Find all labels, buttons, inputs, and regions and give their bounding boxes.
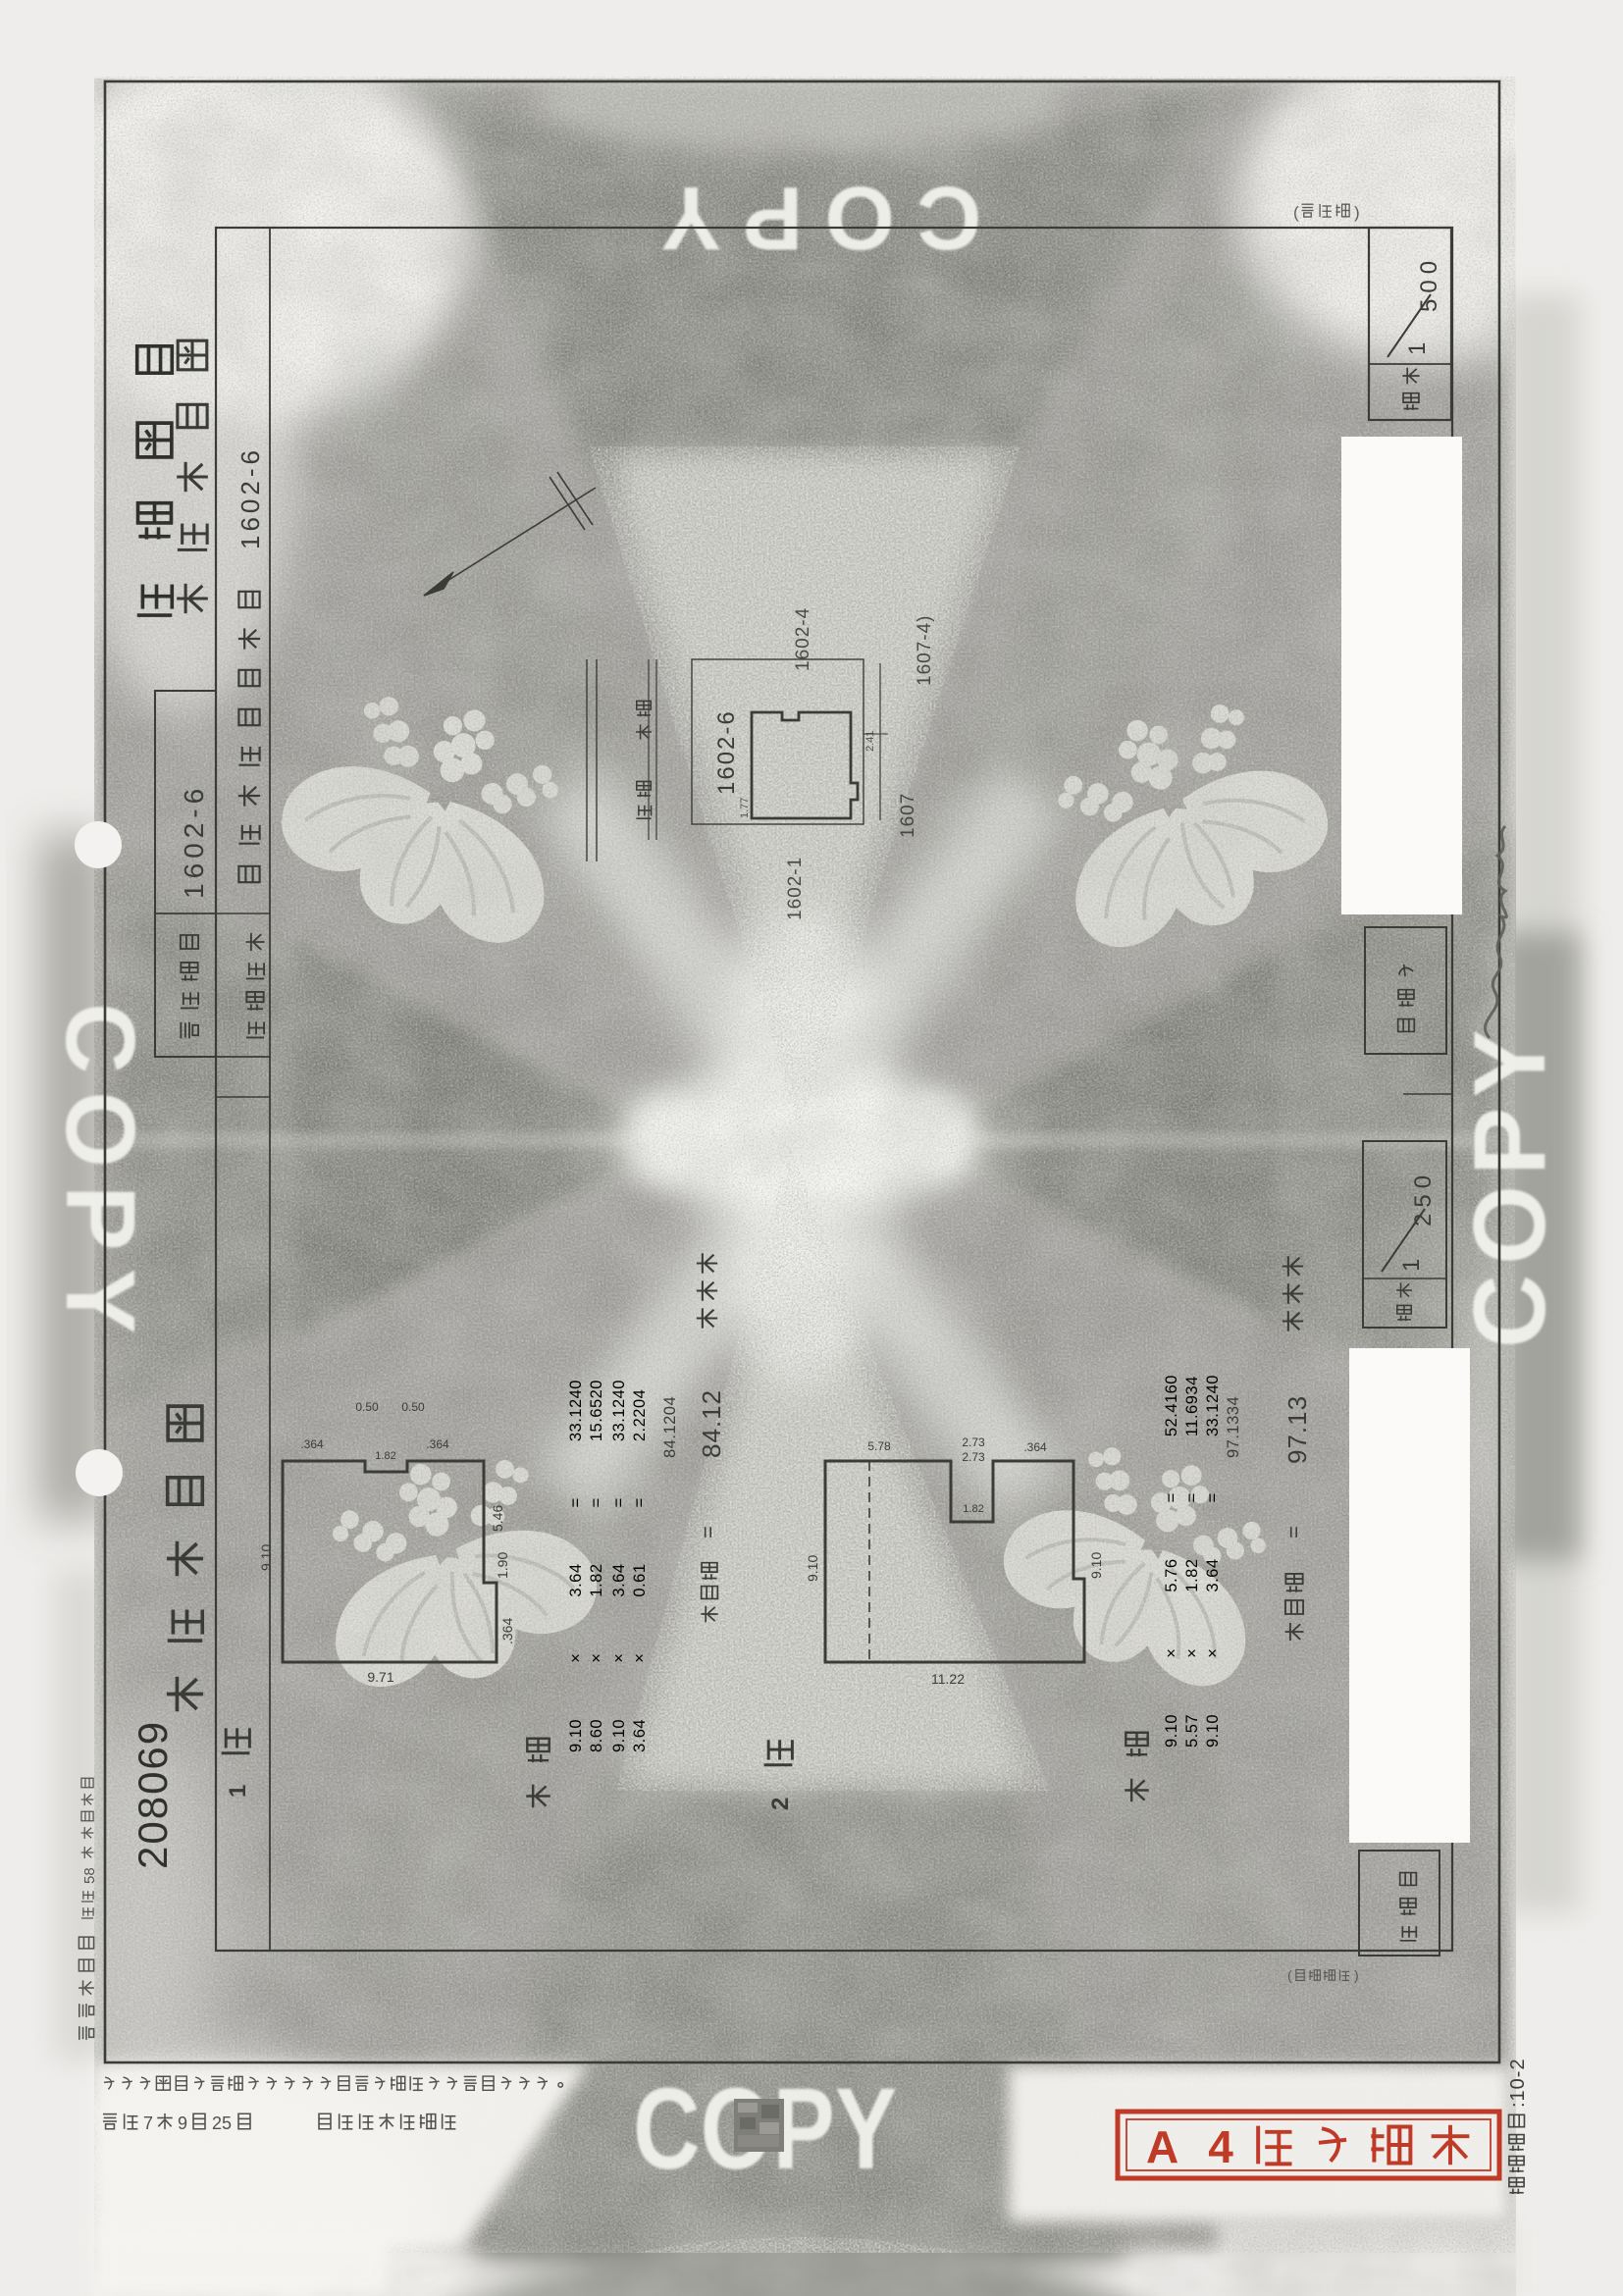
svg-text:97.1334: 97.1334 bbox=[1225, 1396, 1242, 1458]
svg-text:1: 1 bbox=[225, 1785, 251, 1798]
svg-text:1602-4: 1602-4 bbox=[793, 607, 813, 671]
svg-text:.364: .364 bbox=[499, 1618, 515, 1644]
svg-text:9.10: 9.10 bbox=[1088, 1552, 1104, 1579]
svg-text:): ) bbox=[1354, 203, 1360, 222]
svg-text:1.82: 1.82 bbox=[963, 1503, 983, 1515]
svg-text:(: ( bbox=[1287, 1967, 1292, 1983]
svg-text:1: 1 bbox=[1404, 342, 1431, 355]
svg-text:2.73: 2.73 bbox=[962, 1450, 985, 1464]
svg-text:0.50: 0.50 bbox=[355, 1400, 379, 1414]
svg-text:=: = bbox=[696, 1526, 720, 1539]
svg-text:84.12: 84.12 bbox=[697, 1389, 726, 1458]
svg-text:500: 500 bbox=[1416, 255, 1442, 312]
svg-text:1602-6: 1602-6 bbox=[236, 446, 265, 549]
svg-text:9.10 × 3.64 = 33.1240: 9.10 × 3.64 = 33.1240 bbox=[1204, 1375, 1222, 1748]
svg-text:COPY: COPY bbox=[640, 168, 982, 268]
svg-text:5.57 × 1.82 = 11.6934: 5.57 × 1.82 = 11.6934 bbox=[1183, 1376, 1201, 1748]
svg-text:208069: 208069 bbox=[130, 1720, 176, 1869]
svg-text:(: ( bbox=[1293, 203, 1299, 222]
svg-text:2: 2 bbox=[767, 1798, 794, 1810]
svg-text:1.77: 1.77 bbox=[739, 798, 751, 818]
svg-text:5.78: 5.78 bbox=[867, 1439, 891, 1453]
svg-text:.364: .364 bbox=[300, 1437, 324, 1451]
svg-text:3.64 × 0.61 = 2.2204: 3.64 × 0.61 = 2.2204 bbox=[631, 1389, 649, 1752]
svg-text:9.71: 9.71 bbox=[367, 1669, 393, 1685]
svg-text:1.82: 1.82 bbox=[375, 1450, 395, 1462]
svg-text:1602-1: 1602-1 bbox=[785, 857, 806, 920]
svg-text:9.10: 9.10 bbox=[258, 1544, 274, 1571]
svg-text:9.10: 9.10 bbox=[805, 1555, 820, 1582]
svg-text:84.1204: 84.1204 bbox=[661, 1396, 679, 1458]
svg-text::10-2: :10-2 bbox=[1507, 2058, 1529, 2108]
svg-text:): ) bbox=[1354, 1967, 1359, 1983]
svg-text:9.10 × 5.76 = 52.4160: 9.10 × 5.76 = 52.4160 bbox=[1163, 1375, 1180, 1748]
svg-text:COPY: COPY bbox=[1453, 1019, 1567, 1348]
svg-text:=: = bbox=[1282, 1526, 1306, 1539]
svg-text:9: 9 bbox=[178, 2113, 187, 2133]
svg-text:250: 250 bbox=[1410, 1170, 1437, 1226]
svg-text:.364: .364 bbox=[426, 1437, 449, 1451]
svg-text:58: 58 bbox=[81, 1867, 98, 1884]
svg-text:9.10 × 3.64 = 33.1240: 9.10 × 3.64 = 33.1240 bbox=[610, 1380, 628, 1752]
svg-text:5.46: 5.46 bbox=[490, 1505, 505, 1532]
svg-text:7: 7 bbox=[143, 2113, 153, 2133]
svg-text:9.10 × 3.64 = 33.1240: 9.10 × 3.64 = 33.1240 bbox=[567, 1380, 585, 1752]
svg-text:2.73: 2.73 bbox=[962, 1435, 985, 1449]
svg-text:A4: A4 bbox=[1146, 2121, 1263, 2172]
svg-text:11.22: 11.22 bbox=[931, 1671, 965, 1687]
svg-text:COPY: COPY bbox=[45, 1003, 155, 1351]
svg-text:97.13: 97.13 bbox=[1283, 1395, 1312, 1464]
svg-text:1602-6: 1602-6 bbox=[179, 784, 209, 899]
svg-text:1607-4): 1607-4) bbox=[915, 615, 935, 687]
svg-text:8.60 × 1.82 = 15.6520: 8.60 × 1.82 = 15.6520 bbox=[588, 1380, 605, 1752]
svg-text:0.50: 0.50 bbox=[401, 1400, 425, 1414]
svg-text:25: 25 bbox=[212, 2113, 232, 2133]
svg-text:1: 1 bbox=[1398, 1259, 1425, 1272]
svg-text:2.41: 2.41 bbox=[864, 731, 876, 752]
svg-text:1602-6: 1602-6 bbox=[713, 709, 740, 795]
svg-text:.364: .364 bbox=[1023, 1440, 1047, 1454]
svg-text:1.90: 1.90 bbox=[495, 1552, 510, 1579]
svg-text:1607: 1607 bbox=[898, 793, 918, 838]
